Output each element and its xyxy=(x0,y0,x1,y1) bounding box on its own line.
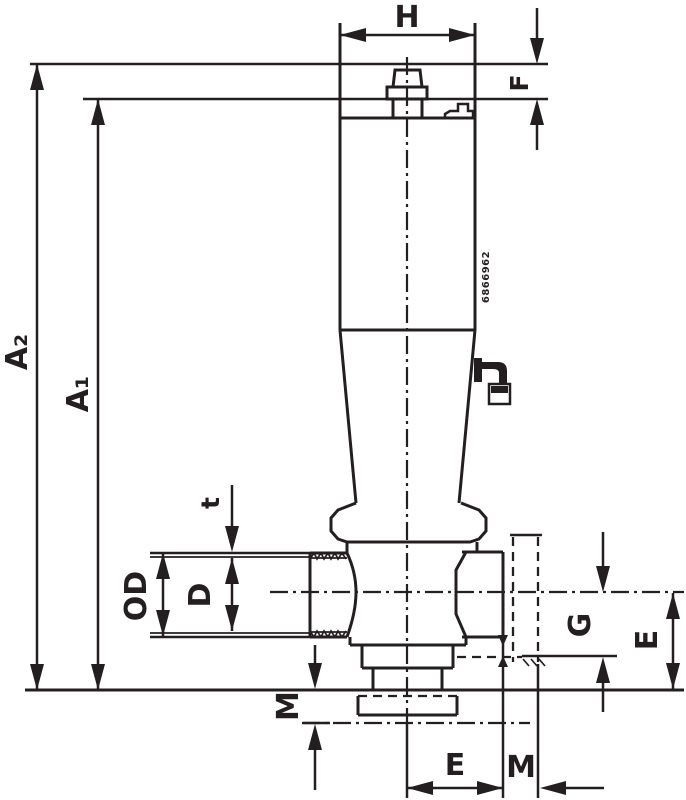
body-marking-text: 6866962 xyxy=(481,251,492,303)
technical-drawing: 6866962 xyxy=(0,0,686,800)
dim-label-F: F xyxy=(505,74,534,91)
dim-label-OD: OD xyxy=(119,571,154,621)
dim-label-M-bottom: M xyxy=(506,750,536,785)
dim-label-E-right: E xyxy=(630,630,665,651)
dim-label-E-bottom: E xyxy=(445,748,466,783)
dim-label-G: G xyxy=(563,613,598,638)
centerlines xyxy=(270,57,684,798)
dim-label-D: D xyxy=(183,583,218,608)
dim-label-H: H xyxy=(394,0,419,35)
dim-label-M-left: M xyxy=(271,691,306,721)
drawing-canvas: 6866962 xyxy=(0,0,686,800)
dim-label-A2: A₂ xyxy=(0,334,35,370)
side-elbow-detail xyxy=(474,358,510,404)
dim-label-A1: A₁ xyxy=(61,376,96,412)
dim-label-t: t xyxy=(196,497,225,509)
dimension-lines xyxy=(30,8,680,798)
